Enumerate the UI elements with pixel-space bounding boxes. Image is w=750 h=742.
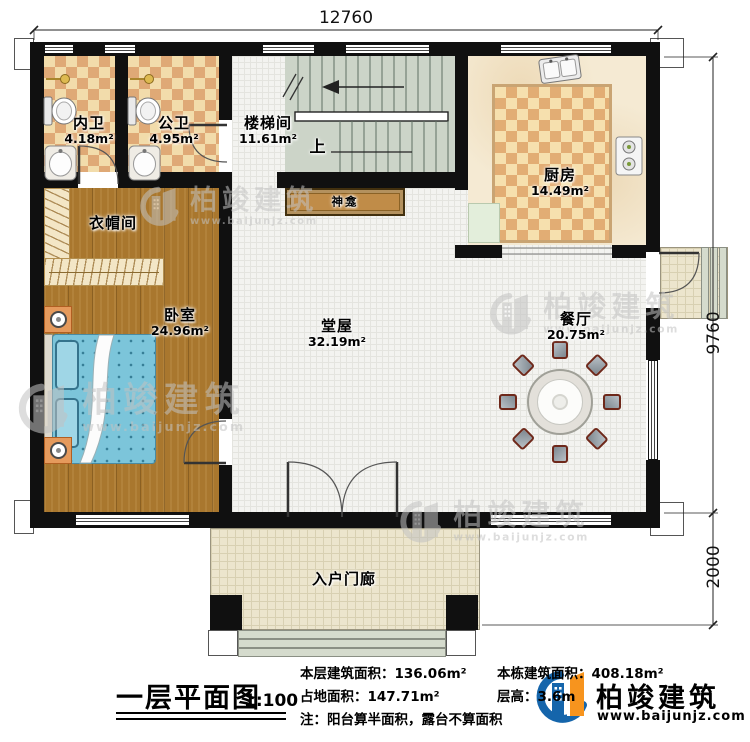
- side-porch-step: [701, 247, 709, 319]
- dining-table-hub: [552, 394, 568, 410]
- window: [44, 44, 74, 54]
- room-name: 神龛: [332, 196, 359, 209]
- room-area: 24.96m²: [151, 323, 209, 337]
- room-label-neiwei: 内卫 4.18m²: [64, 115, 113, 145]
- stat-floor-area: 本层建筑面积：136.06m²: [300, 662, 467, 682]
- room-area: 14.49m²: [531, 183, 589, 197]
- room-label-shenkan: 神龛: [332, 196, 359, 209]
- porch-step: [238, 648, 446, 657]
- wall-kitchen-bottom: [612, 245, 646, 258]
- wall-right: [646, 460, 660, 512]
- room-area: 32.19m²: [308, 334, 366, 348]
- room-name: 衣帽间: [89, 215, 137, 232]
- stat-value: 136.06m²: [395, 666, 467, 682]
- stat-value: 147.71m²: [368, 689, 440, 705]
- window: [345, 44, 430, 54]
- porch-column: [210, 595, 242, 630]
- wardrobe-vertical: [44, 188, 70, 262]
- room-name: 楼梯间: [239, 115, 297, 132]
- dimension-right-lower-label: 2000: [704, 545, 724, 588]
- wall-left: [30, 42, 44, 528]
- stat-label: 占地面积：: [300, 689, 368, 705]
- room-name: 公卫: [149, 115, 198, 132]
- wall-bath-hall: [219, 56, 232, 120]
- stat-story-height: 层高：3.6m: [497, 685, 575, 705]
- room-label-chufang: 厨房 14.49m²: [531, 167, 589, 197]
- room-name: 入户门廊: [312, 571, 376, 588]
- wall-kitchen-bottom: [455, 245, 502, 258]
- dimension-right-upper-label: 9760: [704, 311, 724, 354]
- porch-column: [446, 595, 478, 630]
- floor-plan-canvas: 12760 9760 2000 内卫 4.18m² 公卫 4.95m² 楼梯间 …: [0, 0, 750, 742]
- plan-scale: 1:100: [244, 691, 298, 711]
- title-underline: [116, 712, 286, 720]
- lamp-icon: [50, 442, 67, 459]
- dimension-top-label: 12760: [319, 8, 373, 28]
- watermark: 柏竣建筑www.baijunjz.com: [16, 380, 246, 437]
- room-label-loutijian: 楼梯间 11.61m²: [239, 115, 297, 145]
- lamp-icon: [50, 311, 67, 328]
- watermark-logo-icon: [138, 184, 183, 229]
- watermark: 柏竣建筑www.baijunjz.com: [398, 498, 589, 546]
- room-label-canting: 餐厅 20.75m²: [547, 311, 605, 341]
- porch-post: [208, 630, 238, 656]
- stat-label: 本栋建筑面积：: [497, 666, 592, 682]
- porch-step: [238, 630, 446, 639]
- stat-land-area: 占地面积：147.71m²: [300, 685, 440, 705]
- kitchen-counter: [468, 203, 500, 243]
- stat-note: 注：阳台算半面积，露台不算面积: [300, 708, 503, 728]
- wall-kitchen-left: [455, 56, 468, 190]
- room-label-woshi: 卧室 24.96m²: [151, 307, 209, 337]
- nightstand: [44, 437, 72, 464]
- dining-chair: [552, 445, 568, 463]
- side-porch-step: [710, 247, 718, 319]
- porch-post: [446, 630, 476, 656]
- room-name: 厨房: [531, 167, 589, 184]
- room-name: 堂屋: [308, 318, 366, 335]
- wall-right: [646, 42, 660, 252]
- room-area: 4.95m²: [149, 131, 198, 145]
- window: [104, 44, 136, 54]
- watermark-logo-icon: [488, 290, 536, 338]
- dining-chair: [499, 394, 517, 410]
- dining-chair: [552, 341, 568, 359]
- window: [500, 44, 612, 54]
- room-name: 餐厅: [547, 311, 605, 328]
- watermark-logo-icon: [16, 380, 73, 437]
- company-logo-url: www.baijunjz.com: [597, 709, 746, 724]
- wall-bath-divider: [115, 56, 128, 172]
- porch-step: [238, 639, 446, 648]
- wall-bedroom-hall: [219, 465, 232, 512]
- stairs-up-label: 上: [309, 138, 326, 156]
- room-label-yimaojian: 衣帽间: [89, 215, 137, 232]
- window: [75, 514, 190, 526]
- room-name: 内卫: [64, 115, 113, 132]
- plan-title: 一层平面图: [116, 676, 261, 715]
- room-label-menlang: 入户门廊: [312, 571, 376, 588]
- window: [262, 44, 315, 54]
- kitchen-rug: [492, 84, 612, 243]
- watermark: 柏竣建筑www.baijunjz.com: [138, 184, 318, 229]
- stat-label: 层高：: [497, 689, 538, 705]
- dining-chair: [603, 394, 621, 410]
- stat-value: 3.6m: [538, 689, 576, 705]
- nightstand: [44, 306, 72, 333]
- room-area: 20.75m²: [547, 327, 605, 341]
- watermark-logo-icon: [398, 498, 446, 546]
- window: [648, 360, 658, 460]
- room-label-gongwei: 公卫 4.95m²: [149, 115, 198, 145]
- wardrobe-horizontal: [44, 258, 164, 286]
- room-label-tangwu: 堂屋 32.19m²: [308, 318, 366, 348]
- side-porch-step: [719, 247, 727, 319]
- stat-label: 本层建筑面积：: [300, 666, 395, 682]
- room-area: 4.18m²: [64, 131, 113, 145]
- room-name: 卧室: [151, 307, 209, 324]
- wall-bath-bottom: [44, 172, 78, 188]
- room-area: 11.61m²: [239, 131, 297, 145]
